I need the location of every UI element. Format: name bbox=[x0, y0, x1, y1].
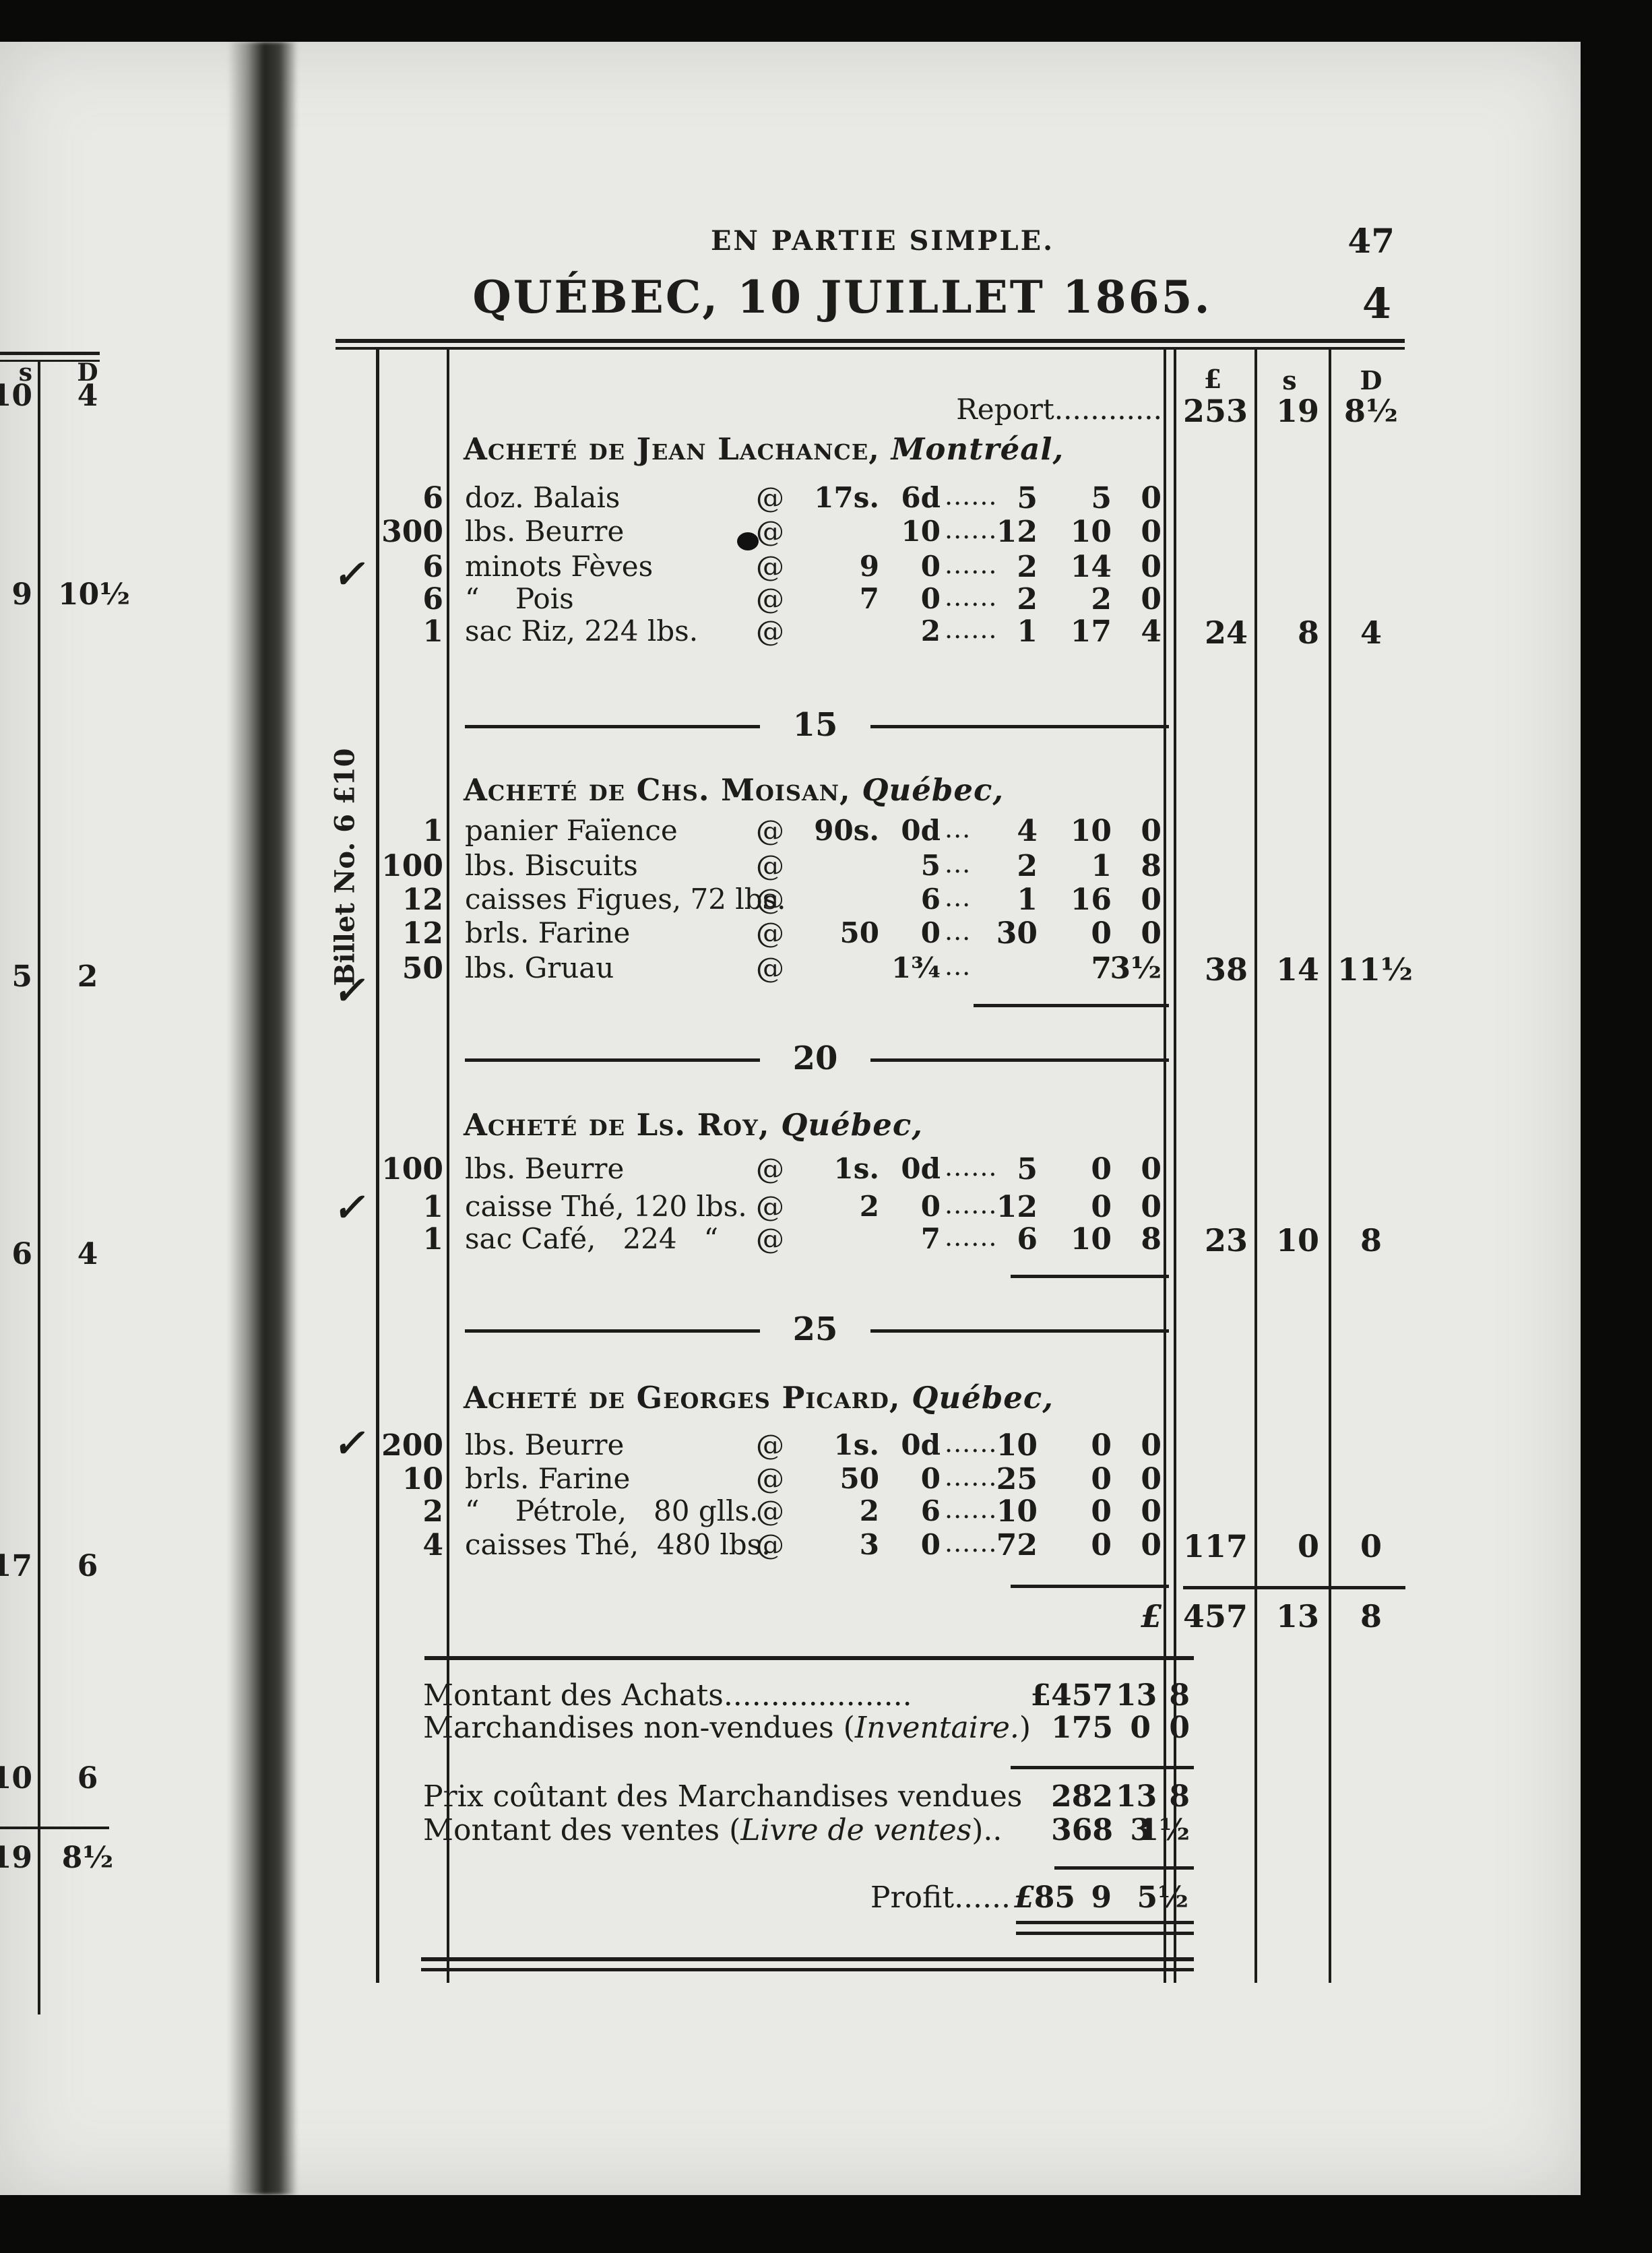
item-row: 6 minots Fèves @ 9 0 ...... 2 14 0 bbox=[0, 550, 1652, 585]
amount-shillings: 16 bbox=[1046, 883, 1112, 917]
rate-pence: 10 bbox=[884, 515, 941, 548]
rate-pence: 2 bbox=[884, 614, 941, 647]
profit-label: Profit...... bbox=[728, 1880, 1011, 1915]
rule bbox=[1011, 1766, 1194, 1769]
grand-total-row: £ 457 13 8 bbox=[0, 1598, 1652, 1633]
at-sign: @ bbox=[752, 1222, 788, 1255]
divider-line bbox=[465, 1058, 760, 1062]
item-row: 6 “ Pois @ 7 0 ...... 2 2 0 bbox=[0, 582, 1652, 617]
divider-line bbox=[870, 1058, 1169, 1062]
amount-shillings: 10 bbox=[1046, 814, 1112, 848]
amount-shillings: 0 bbox=[1046, 1152, 1112, 1186]
rate-shillings: 2 bbox=[788, 1494, 879, 1527]
rate-pence: 0 bbox=[884, 1528, 941, 1561]
day-divider: 15 bbox=[0, 706, 1652, 747]
ink-blot bbox=[737, 532, 759, 550]
sub-total-rule bbox=[974, 1004, 1169, 1007]
at-sign: @ bbox=[752, 481, 788, 514]
item-row: 300 lbs. Beurre @ 10 ...... 12 10 0 bbox=[0, 515, 1652, 550]
item-row: 1 panier Faïence @ 90s. 0d ... 4 10 0 bbox=[0, 814, 1652, 849]
rate-pence: 0 bbox=[884, 1462, 941, 1495]
section-total-pence: 0 bbox=[1337, 1528, 1405, 1564]
amount-pence: 8 bbox=[1105, 849, 1162, 883]
total-rule bbox=[1183, 1586, 1405, 1589]
at-sign: @ bbox=[752, 1152, 788, 1185]
item-desc: doz. Balais bbox=[465, 481, 768, 514]
amount-pence: 0 bbox=[1105, 1190, 1162, 1224]
rate-pence: 6 bbox=[884, 1494, 941, 1527]
item-qty: 1 bbox=[364, 1222, 443, 1257]
label-text: Marchandises non-vendues ( bbox=[423, 1711, 855, 1745]
item-desc: brls. Farine bbox=[465, 916, 768, 949]
amount-pence: 0 bbox=[1105, 550, 1162, 584]
summary-row: Prix coûtant des Marchandises vendues 28… bbox=[0, 1779, 1652, 1814]
rate-shillings: 90s. bbox=[788, 814, 879, 847]
item-qty: 1 bbox=[364, 614, 443, 649]
item-row: 10 brls. Farine @ 50 0 ...... 25 0 0 bbox=[0, 1462, 1652, 1497]
summary-pound: 282 bbox=[930, 1779, 1113, 1814]
summary-pence: 0 bbox=[1137, 1711, 1190, 1745]
summary-pence: 8 bbox=[1137, 1779, 1190, 1814]
section-total-pound: 23 bbox=[1178, 1222, 1248, 1259]
amount-pounds: 10 bbox=[969, 1428, 1038, 1463]
report-shillings: 19 bbox=[1257, 393, 1319, 429]
rate-pence: 1¾ bbox=[884, 951, 941, 984]
at-sign: @ bbox=[752, 814, 788, 847]
at-sign: @ bbox=[752, 582, 788, 615]
label-text: Montant des ventes ( bbox=[423, 1813, 740, 1847]
double-rule bbox=[336, 339, 1405, 343]
rate-pence: 6d bbox=[884, 481, 941, 514]
rate-shillings: 2 bbox=[788, 1190, 879, 1223]
divider-line bbox=[870, 725, 1169, 728]
section-total-pound: 38 bbox=[1178, 951, 1248, 988]
amount-pounds: 6 bbox=[969, 1222, 1038, 1257]
amount-shillings: 7 bbox=[1046, 951, 1112, 986]
item-desc: brls. Farine bbox=[465, 1462, 768, 1495]
currency-symbol: £ bbox=[1091, 1598, 1162, 1635]
section-total-shillings: 0 bbox=[1257, 1528, 1319, 1564]
item-qty: 100 bbox=[364, 1152, 443, 1186]
section-total-pence: 11½ bbox=[1337, 951, 1405, 988]
margin-note: Billet No. 6 £10 bbox=[329, 749, 361, 986]
amount-pounds: 1 bbox=[969, 883, 1038, 917]
at-sign: @ bbox=[752, 550, 788, 583]
rule bbox=[1054, 1866, 1194, 1870]
summary-pound: £457 bbox=[930, 1678, 1113, 1713]
rate-shillings: 9 bbox=[788, 550, 879, 583]
rate-pence: 7 bbox=[884, 1222, 941, 1255]
item-qty: 1 bbox=[364, 814, 443, 848]
summary-pound: 368 bbox=[930, 1813, 1113, 1847]
vendor-heading: Acheté de Ls. Roy, Québec, bbox=[464, 1107, 1205, 1146]
at-sign: @ bbox=[752, 849, 788, 882]
item-desc: sac Café, 224 “ bbox=[465, 1222, 768, 1255]
amount-shillings: 2 bbox=[1046, 582, 1112, 616]
scan-border-bottom bbox=[0, 2195, 1652, 2253]
pence-header: D bbox=[1337, 365, 1405, 395]
amount-pence: 0 bbox=[1105, 814, 1162, 848]
section-total-pound: 117 bbox=[1178, 1528, 1248, 1564]
section-total-shillings: 8 bbox=[1257, 614, 1319, 651]
item-desc: “ Pétrole, 80 glls. bbox=[465, 1494, 768, 1527]
item-row: 1 sac Café, 224 “ @ 7 ...... 6 10 8 23 1… bbox=[0, 1222, 1652, 1257]
item-desc: lbs. Beurre bbox=[465, 1152, 768, 1185]
divider-number: 15 bbox=[760, 706, 870, 744]
item-desc: lbs. Beurre bbox=[465, 1428, 768, 1461]
amount-shillings: 0 bbox=[1046, 1190, 1112, 1224]
item-row: 200 lbs. Beurre @ 1s. 0d ...... 10 0 0 bbox=[0, 1428, 1652, 1463]
section-total-pence: 8 bbox=[1337, 1222, 1405, 1259]
item-qty: 12 bbox=[364, 916, 443, 951]
amount-shillings: 5 bbox=[1046, 481, 1112, 515]
summary-pound: 175 bbox=[930, 1711, 1113, 1745]
divider-line bbox=[870, 1329, 1169, 1333]
rate-pence: 0 bbox=[884, 550, 941, 583]
amount-pence: 0 bbox=[1105, 916, 1162, 951]
item-qty: 4 bbox=[364, 1528, 443, 1562]
amount-pence: 0 bbox=[1105, 481, 1162, 515]
vendor-place: Québec, bbox=[912, 1380, 1054, 1416]
item-row: 4 caisses Thé, 480 lbs. @ 3 0 ...... 72 … bbox=[0, 1528, 1652, 1563]
amount-shillings: 0 bbox=[1046, 1428, 1112, 1463]
divider-number: 20 bbox=[760, 1040, 870, 1077]
item-qty: 10 bbox=[364, 1462, 443, 1496]
at-sign: @ bbox=[752, 1462, 788, 1495]
profit-pound: 85 bbox=[1019, 1880, 1075, 1915]
amount-pounds: 2 bbox=[969, 582, 1038, 616]
amount-pounds: 1 bbox=[969, 614, 1038, 649]
amount-pounds: 30 bbox=[969, 916, 1038, 951]
double-rule bbox=[1016, 1921, 1194, 1924]
report-pence: 8½ bbox=[1337, 393, 1405, 429]
amount-pounds: 2 bbox=[969, 550, 1038, 584]
double-rule bbox=[421, 1957, 1194, 1961]
item-row: 50 lbs. Gruau @ 1¾ ... 7 3½ 38 14 11½ bbox=[0, 951, 1652, 986]
summary-row: Marchandises non-vendues (Inventaire.) 1… bbox=[0, 1711, 1652, 1746]
profit-shillings: 9 bbox=[1082, 1880, 1112, 1915]
item-desc: “ Pois bbox=[465, 582, 768, 615]
scan-border-top bbox=[0, 0, 1652, 42]
item-qty: 2 bbox=[364, 1494, 443, 1529]
item-row: 12 brls. Farine @ 50 0 ... 30 0 0 bbox=[0, 916, 1652, 951]
sub-total-rule bbox=[1011, 1275, 1169, 1278]
grand-total-pence: 8 bbox=[1337, 1598, 1405, 1635]
amount-shillings: 10 bbox=[1046, 1222, 1112, 1257]
section-rule bbox=[424, 1656, 1194, 1660]
amount-shillings: 0 bbox=[1046, 1528, 1112, 1562]
rate-pence: 0 bbox=[884, 916, 941, 949]
scanned-ledger-page: s D 10 4 9 10½ 5 2 6 4 17 6 10 6 19 bbox=[0, 0, 1652, 2253]
amount-pounds: 10 bbox=[969, 1494, 1038, 1529]
section-total-shillings: 10 bbox=[1257, 1222, 1319, 1259]
amount-shillings: 17 bbox=[1046, 614, 1112, 649]
item-desc: caisse Thé, 120 lbs. bbox=[465, 1190, 768, 1223]
section-total-pound: 24 bbox=[1178, 614, 1248, 651]
at-sign: @ bbox=[752, 1494, 788, 1527]
vendor-heading: Acheté de Georges Picard, Québec, bbox=[464, 1380, 1205, 1419]
scan-border-right bbox=[1581, 0, 1652, 2253]
shillings-header: s bbox=[1259, 365, 1321, 395]
summary-pence: 8 bbox=[1137, 1678, 1190, 1713]
item-desc: panier Faïence bbox=[465, 814, 768, 847]
grand-total-shillings: 13 bbox=[1257, 1598, 1319, 1635]
amount-pounds: 72 bbox=[969, 1528, 1038, 1562]
item-qty: 6 bbox=[364, 481, 443, 515]
rate-shillings: 17s. bbox=[788, 481, 879, 514]
folio-number: 4 bbox=[1317, 279, 1391, 328]
rate-shillings: 50 bbox=[788, 916, 879, 949]
double-rule bbox=[1016, 1932, 1194, 1935]
item-row: 100 lbs. Biscuits @ 5 ... 2 1 8 bbox=[0, 849, 1652, 884]
rate-pence: 0d bbox=[884, 814, 941, 847]
vendor-name: Acheté de Chs. Moisan, bbox=[464, 772, 851, 808]
amount-shillings: 0 bbox=[1046, 1494, 1112, 1529]
amount-pounds: 25 bbox=[969, 1462, 1038, 1496]
amount-pounds: 5 bbox=[969, 481, 1038, 515]
divider-line bbox=[465, 1329, 760, 1333]
item-qty: 200 bbox=[364, 1428, 443, 1463]
double-rule bbox=[0, 352, 100, 355]
item-qty: 12 bbox=[364, 883, 443, 917]
at-sign: @ bbox=[752, 916, 788, 949]
at-sign: @ bbox=[752, 614, 788, 647]
report-pound: 253 bbox=[1178, 393, 1248, 429]
at-sign: @ bbox=[752, 883, 788, 916]
vendor-heading: Acheté de Jean Lachance, Montréal, bbox=[464, 431, 1205, 470]
amount-pence: 8 bbox=[1105, 1222, 1162, 1257]
rate-pence: 0 bbox=[884, 582, 941, 615]
rate-pence: 0d bbox=[884, 1152, 941, 1185]
summary-pence: 1½ bbox=[1137, 1813, 1190, 1847]
amount-pence: 0 bbox=[1105, 1428, 1162, 1463]
item-row: 1 sac Riz, 224 lbs. @ 2 ...... 1 17 4 24… bbox=[0, 614, 1652, 649]
report-row: Report............ 253 19 8½ bbox=[0, 393, 1652, 428]
page-title: QUÉBEC, 10 JUILLET 1865. bbox=[472, 271, 1213, 323]
vendor-place: Montréal, bbox=[891, 431, 1065, 467]
amount-pence: 0 bbox=[1105, 1152, 1162, 1186]
divider-line bbox=[465, 725, 760, 728]
amount-pounds: 5 bbox=[969, 1152, 1038, 1186]
rate-shillings: 3 bbox=[788, 1528, 879, 1561]
item-qty: 300 bbox=[364, 515, 443, 549]
item-qty: 6 bbox=[364, 582, 443, 616]
grand-total-pound: 457 bbox=[1178, 1598, 1248, 1635]
amount-pence: 0 bbox=[1105, 883, 1162, 917]
profit-row: Profit...... £ 85 9 5½ bbox=[0, 1880, 1652, 1915]
section-total-shillings: 14 bbox=[1257, 951, 1319, 988]
vendor-heading: Acheté de Chs. Moisan, Québec, bbox=[464, 772, 1205, 811]
pound-header: £ bbox=[1179, 364, 1246, 394]
item-row: 2 “ Pétrole, 80 glls. @ 2 6 ...... 10 0 … bbox=[0, 1494, 1652, 1529]
amount-pounds: 2 bbox=[969, 849, 1038, 883]
rate-pence: 6 bbox=[884, 883, 941, 916]
item-desc: minots Fèves bbox=[465, 550, 768, 583]
amount-shillings: 0 bbox=[1046, 916, 1112, 951]
amount-shillings: 1 bbox=[1046, 849, 1112, 883]
amount-pence: 0 bbox=[1105, 1462, 1162, 1496]
summary-row: Montant des Achats.................... £… bbox=[0, 1678, 1652, 1713]
item-row: 100 lbs. Beurre @ 1s. 0d ...... 5 0 0 bbox=[0, 1152, 1652, 1187]
at-sign: @ bbox=[752, 1528, 788, 1561]
item-qty: 50 bbox=[364, 951, 443, 986]
amount-pounds: 12 bbox=[969, 1190, 1038, 1224]
item-qty: 6 bbox=[364, 550, 443, 584]
item-desc: lbs. Gruau bbox=[465, 951, 768, 984]
rate-shillings: 1s. bbox=[788, 1428, 879, 1461]
at-sign: @ bbox=[752, 1428, 788, 1461]
page-number: 47 bbox=[1314, 221, 1395, 261]
vendor-name: Acheté de Georges Picard, bbox=[464, 1380, 901, 1416]
double-rule bbox=[336, 347, 1405, 350]
amount-pounds: 4 bbox=[969, 814, 1038, 848]
item-desc: lbs. Beurre bbox=[465, 515, 768, 548]
at-sign: @ bbox=[752, 951, 788, 984]
divider-number: 25 bbox=[760, 1310, 870, 1348]
item-desc: lbs. Biscuits bbox=[465, 849, 768, 882]
amount-shillings: 14 bbox=[1046, 550, 1112, 584]
item-row: 6 doz. Balais @ 17s. 6d ...... 5 5 0 bbox=[0, 481, 1652, 516]
item-qty: 1 bbox=[364, 1190, 443, 1224]
amount-shillings: 0 bbox=[1046, 1462, 1112, 1496]
item-row: 1 caisse Thé, 120 lbs. @ 2 0 ...... 12 0… bbox=[0, 1190, 1652, 1225]
item-desc: caisses Figues, 72 lbs. bbox=[465, 883, 768, 916]
rate-shillings: 7 bbox=[788, 582, 879, 615]
rate-shillings: 50 bbox=[788, 1462, 879, 1495]
vendor-name: Acheté de Jean Lachance, bbox=[464, 431, 880, 467]
rate-pence: 5 bbox=[884, 849, 941, 882]
rate-pence: 0 bbox=[884, 1190, 941, 1223]
amount-pence: 3½ bbox=[1105, 951, 1162, 986]
item-row: 12 caisses Figues, 72 lbs. @ 6 ... 1 16 … bbox=[0, 883, 1652, 918]
rate-pence: 0d bbox=[884, 1428, 941, 1461]
amount-pence: 0 bbox=[1105, 515, 1162, 549]
profit-pence: 5½ bbox=[1129, 1880, 1188, 1915]
double-rule bbox=[421, 1968, 1194, 1971]
vendor-place: Québec, bbox=[781, 1107, 923, 1143]
amount-pence: 0 bbox=[1105, 582, 1162, 616]
rate-shillings: 1s. bbox=[788, 1152, 879, 1185]
sub-total-rule bbox=[1011, 1585, 1169, 1588]
page-header: EN PARTIE SIMPLE. bbox=[674, 225, 1091, 257]
day-divider: 20 bbox=[0, 1040, 1652, 1080]
item-qty: 100 bbox=[364, 849, 443, 883]
section-total-pence: 4 bbox=[1337, 614, 1405, 651]
at-sign: @ bbox=[752, 1190, 788, 1223]
item-desc: sac Riz, 224 lbs. bbox=[465, 614, 768, 647]
vendor-name: Acheté de Ls. Roy, bbox=[464, 1107, 770, 1143]
dot-leader: ... bbox=[945, 951, 1046, 981]
item-desc: caisses Thé, 480 lbs. bbox=[465, 1528, 768, 1561]
summary-row: Montant des ventes (Livre de ventes).. 3… bbox=[0, 1813, 1652, 1848]
amount-pence: 0 bbox=[1105, 1528, 1162, 1562]
report-label: Report............ bbox=[795, 393, 1162, 426]
day-divider: 25 bbox=[0, 1310, 1652, 1351]
amount-pence: 4 bbox=[1105, 614, 1162, 649]
amount-pounds: 12 bbox=[969, 515, 1038, 549]
amount-pence: 0 bbox=[1105, 1494, 1162, 1529]
vendor-place: Québec, bbox=[862, 772, 1004, 808]
amount-shillings: 10 bbox=[1046, 515, 1112, 549]
